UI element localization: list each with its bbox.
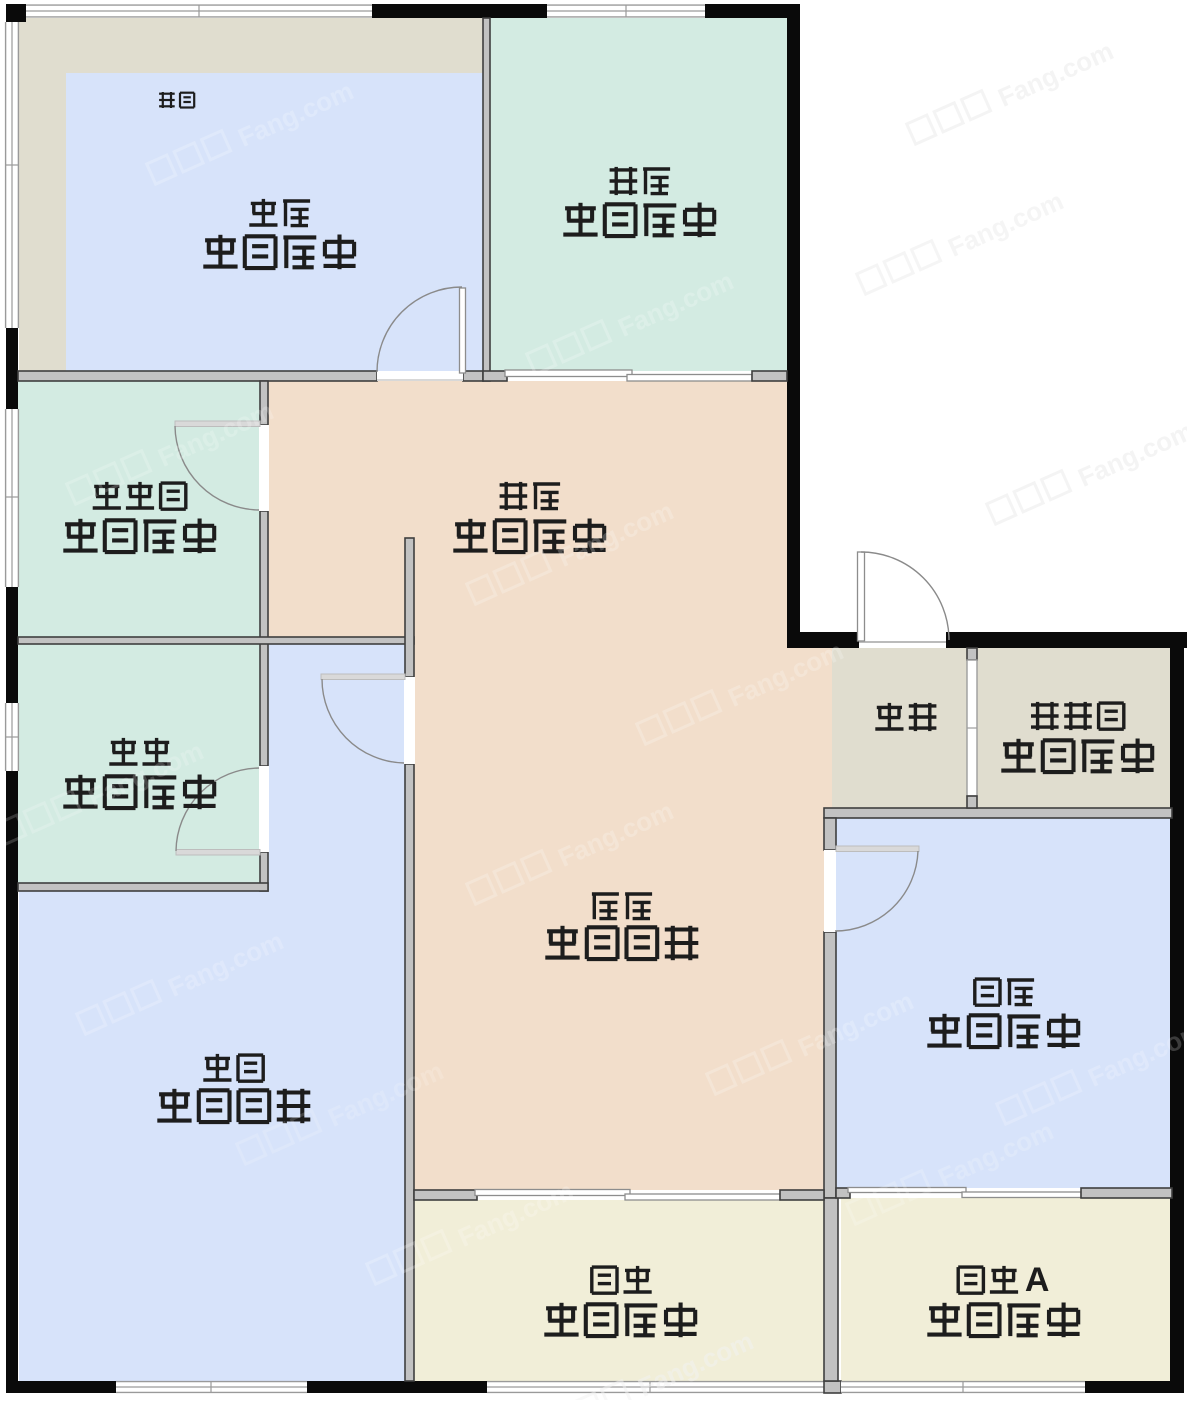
- svg-text:A: A: [1025, 1261, 1050, 1299]
